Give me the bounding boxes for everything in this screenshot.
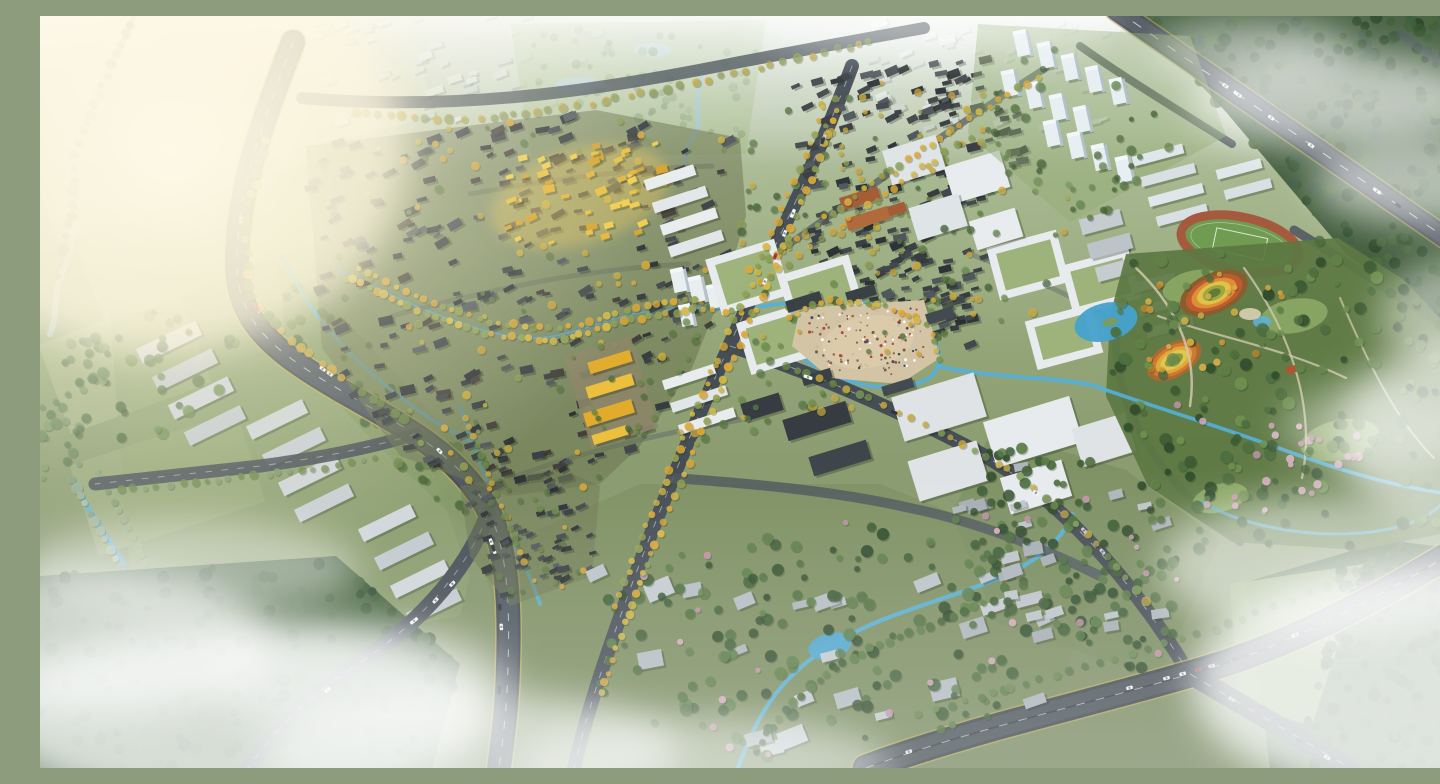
aerial-city-masterplan-rendering: aerial-masterplan-rendering xyxy=(40,16,1440,768)
scene-layers xyxy=(40,16,1440,768)
rendering-canvas xyxy=(40,16,1440,768)
atmospheric-haze xyxy=(40,16,1440,768)
